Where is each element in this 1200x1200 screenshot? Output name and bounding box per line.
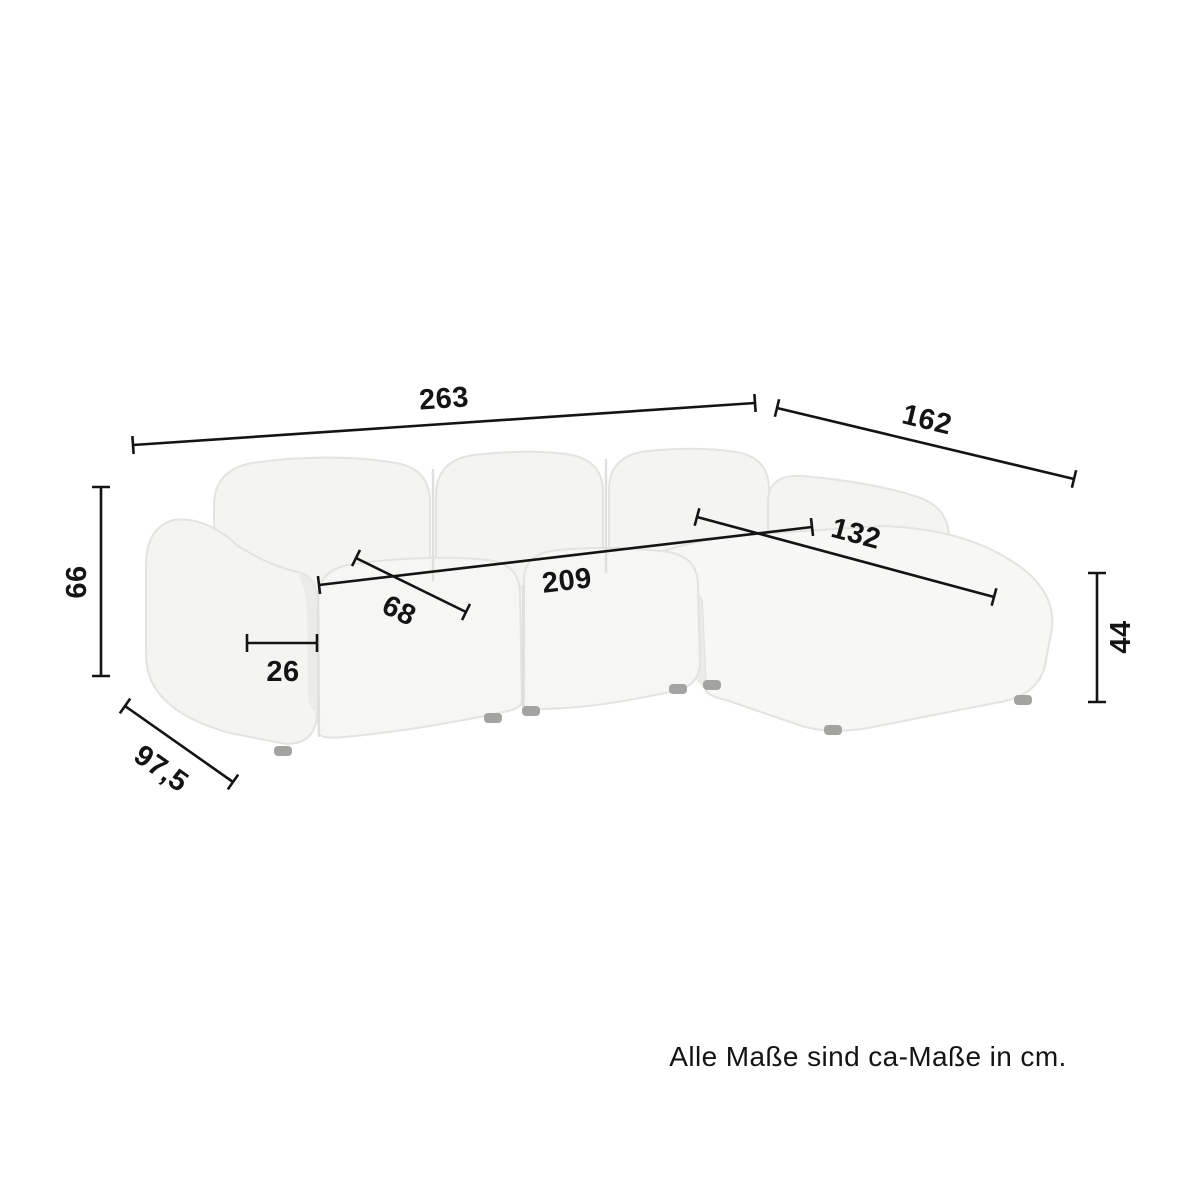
sofa-dimension-drawing: 263 162 66 97,5 26	[0, 0, 1200, 1200]
dimension-seat-height: 44	[1088, 573, 1137, 702]
sofa-foot	[703, 680, 721, 690]
dim-tick	[754, 394, 755, 412]
chaise-module	[661, 526, 1052, 731]
dim-label-back-height: 66	[61, 565, 93, 598]
dimension-chaise-total-depth: 162	[775, 399, 1076, 488]
sofa-foot	[484, 713, 502, 723]
seam-armrest-seat	[318, 592, 319, 736]
dimension-total-width: 263	[132, 381, 755, 454]
dim-tick	[228, 775, 238, 790]
dim-label-armrest-width: 26	[266, 656, 299, 688]
seat-cushion-left	[318, 558, 522, 738]
sofa-illustration	[146, 449, 1052, 756]
sofa-foot	[669, 684, 687, 694]
dimension-diagram: 263 162 66 97,5 26	[0, 0, 1200, 1200]
dim-label-seat-height: 44	[1105, 620, 1137, 653]
dim-label-chaise-total-depth: 162	[899, 399, 955, 442]
dim-label-inner-seat-width: 209	[540, 562, 593, 600]
dim-tick	[120, 699, 130, 714]
dim-label-total-width: 263	[418, 381, 470, 416]
sofa-foot	[522, 706, 540, 716]
sofa-foot	[824, 725, 842, 735]
dimension-back-height: 66	[61, 487, 110, 676]
sofa-foot	[1014, 695, 1032, 705]
dim-tick	[132, 436, 133, 454]
measurement-note: Alle Maße sind ca-Maße in cm.	[669, 1041, 1067, 1073]
sofa-foot	[274, 746, 292, 756]
